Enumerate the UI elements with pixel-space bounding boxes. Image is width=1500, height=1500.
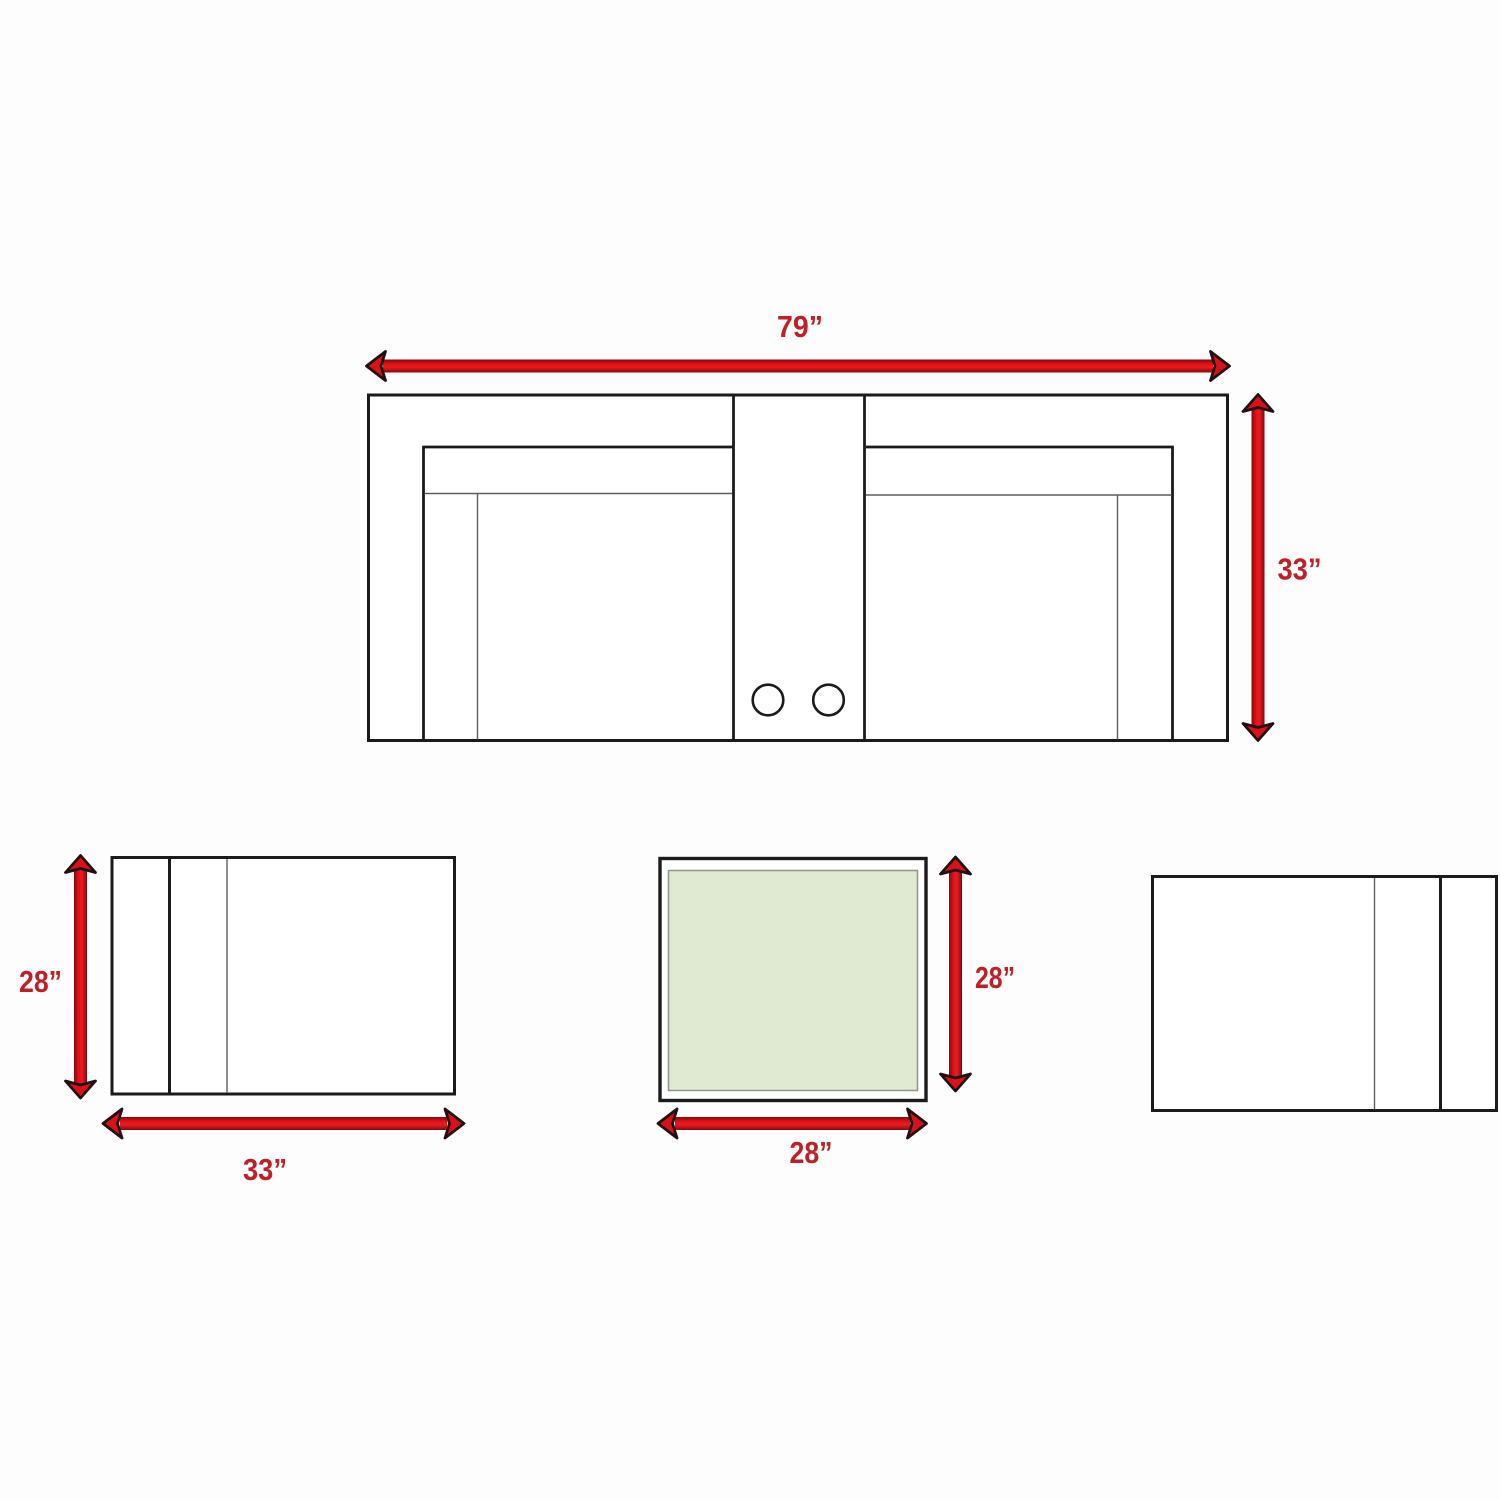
svg-text:33”: 33”: [243, 1152, 287, 1187]
svg-text:28”: 28”: [19, 964, 62, 999]
svg-text:33”: 33”: [1278, 552, 1322, 587]
svg-text:28”: 28”: [975, 960, 1015, 995]
svg-text:28”: 28”: [790, 1135, 833, 1170]
svg-text:79”: 79”: [777, 309, 823, 344]
